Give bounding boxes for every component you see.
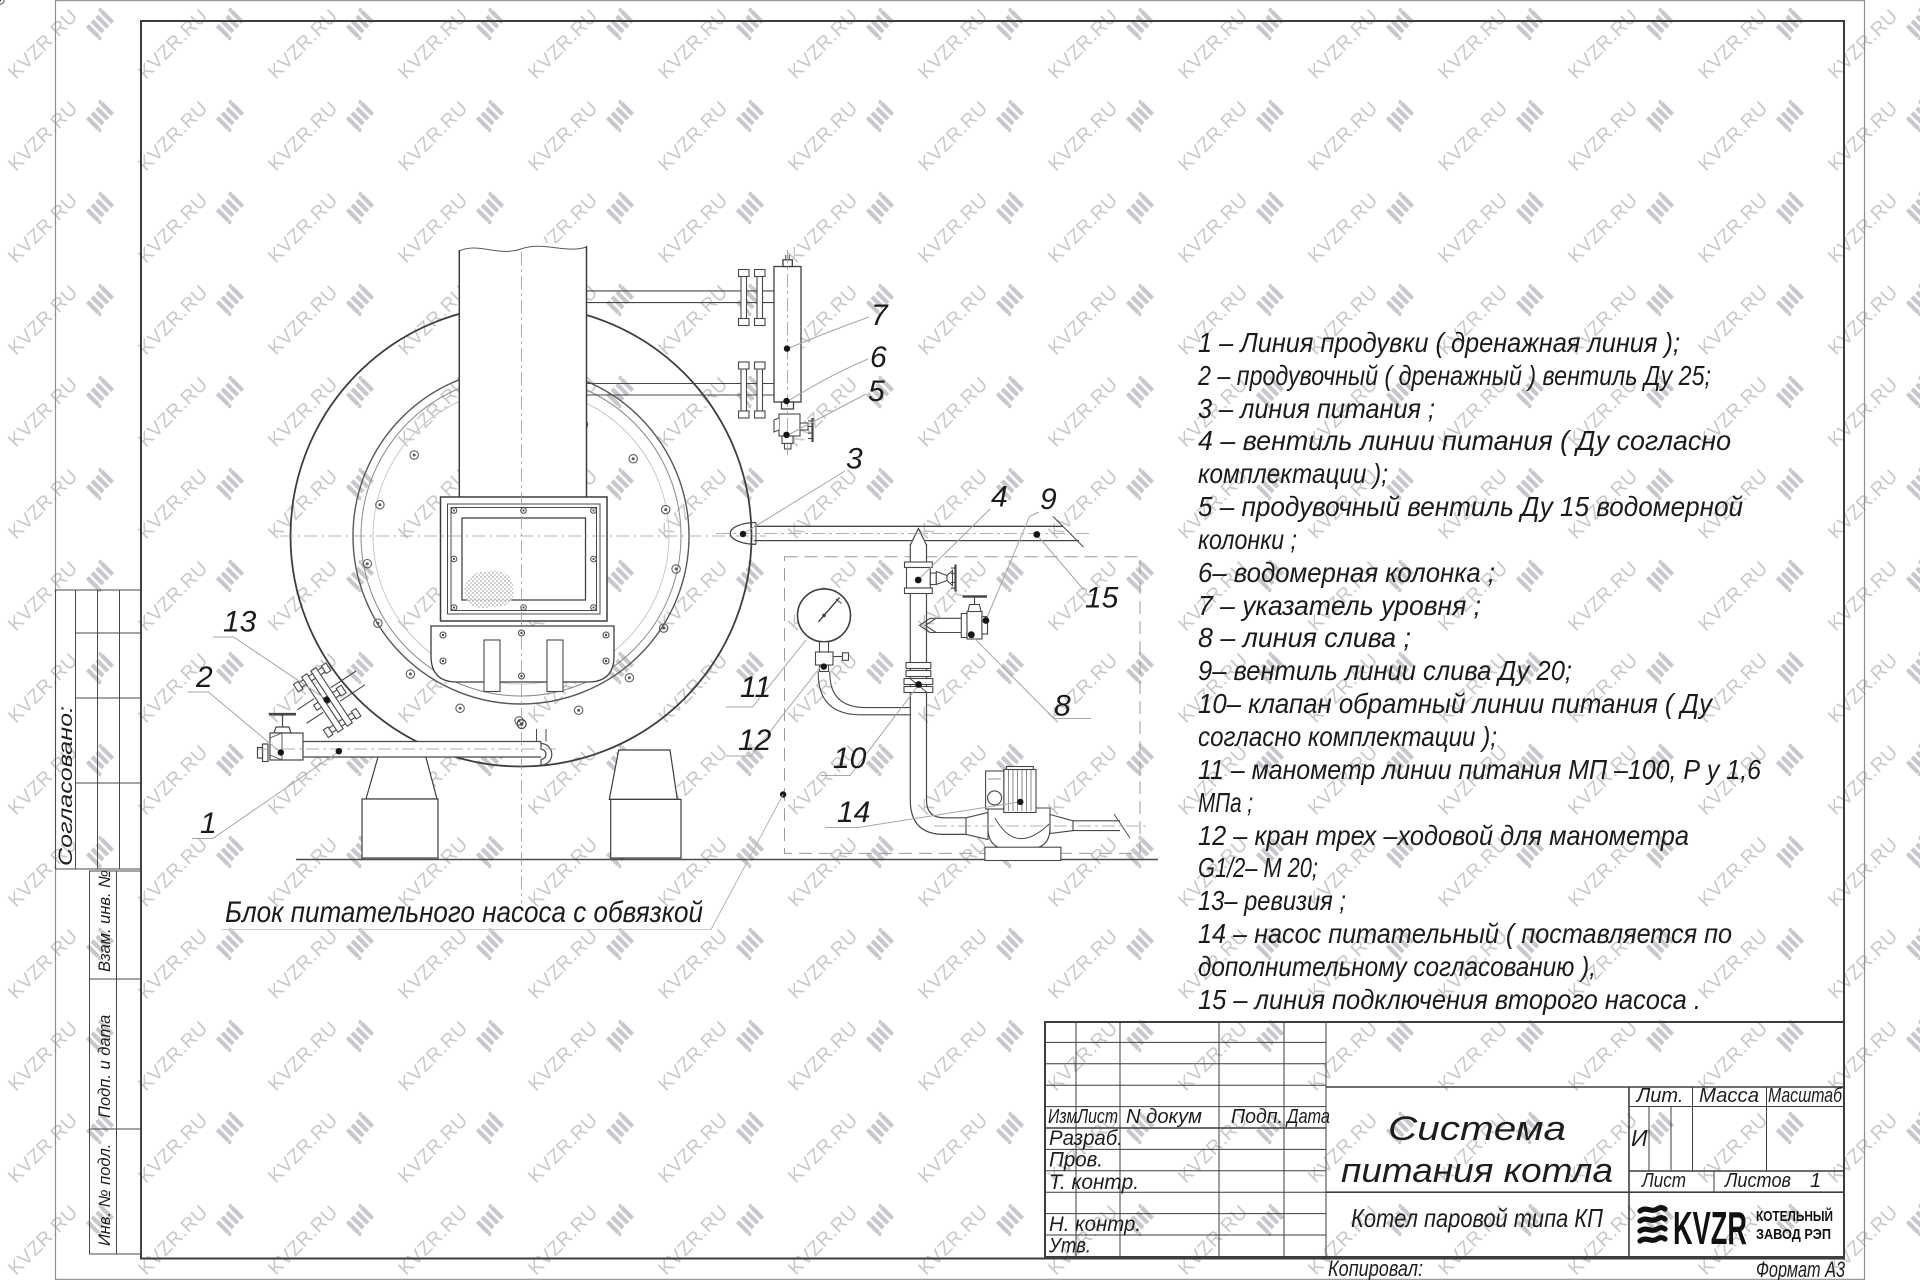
svg-text:Дата: Дата (1285, 1106, 1330, 1128)
svg-text:N докум: N докум (1126, 1106, 1202, 1128)
svg-text:15: 15 (1085, 582, 1119, 615)
svg-text:5 – продувочный вентиль Ду: 5 – продувочный вентиль Ду 15 водомерной (1198, 491, 1743, 522)
svg-text:1: 1 (200, 807, 217, 840)
svg-text:4: 4 (991, 481, 1008, 514)
svg-text:13: 13 (223, 606, 257, 639)
svg-text:Пров.: Пров. (1049, 1149, 1103, 1172)
svg-text:Лист: Лист (1640, 1170, 1686, 1192)
svg-text:14: 14 (837, 796, 870, 829)
svg-text:KVZR: KVZR (1673, 1202, 1747, 1254)
svg-text:12: 12 (738, 724, 772, 757)
svg-text:КОТЕЛЬНЫЙ: КОТЕЛЬНЫЙ (1756, 1207, 1833, 1225)
svg-text:14 – насос питательный ( по: 14 – насос питательный ( поставляется по (1198, 918, 1732, 949)
svg-text:1: 1 (1810, 1170, 1821, 1192)
svg-text:Н. контр.: Н. контр. (1049, 1213, 1141, 1236)
svg-text:Масштаб: Масштаб (1768, 1085, 1843, 1107)
svg-text:5: 5 (868, 375, 885, 408)
svg-text:10: 10 (833, 742, 867, 775)
svg-text:Подп.: Подп. (1231, 1106, 1283, 1128)
svg-text:Формат А3: Формат А3 (1756, 1257, 1846, 1280)
svg-text:8 – линия слива ;: 8 – линия слива ; (1198, 622, 1411, 653)
svg-text:комплектации );: комплектации ); (1198, 458, 1388, 489)
svg-text:Лит.: Лит. (1635, 1085, 1684, 1107)
svg-text:Утв.: Утв. (1048, 1235, 1091, 1258)
svg-text:8: 8 (1054, 690, 1071, 723)
svg-text:колонки ;: колонки ; (1198, 524, 1297, 555)
svg-text:7 – указатель уровня ;: 7 – указатель уровня ; (1198, 590, 1481, 621)
svg-text:Котел паровой типа КП: Котел паровой типа КП (1351, 1203, 1603, 1233)
svg-text:Система: Система (1388, 1110, 1566, 1148)
svg-text:11: 11 (740, 671, 771, 704)
svg-text:Т. контр.: Т. контр. (1049, 1171, 1139, 1194)
svg-text:дополнительному согласованию: дополнительному согласованию ), (1198, 951, 1596, 982)
svg-text:13– ревизия ;: 13– ревизия ; (1198, 885, 1346, 916)
svg-text:Разраб.: Разраб. (1049, 1127, 1123, 1150)
svg-text:9– вентиль линии слива Ду 2: 9– вентиль линии слива Ду 20; (1198, 655, 1572, 686)
svg-text:Инв. № подл.: Инв. № подл. (96, 1144, 114, 1246)
svg-text:2: 2 (195, 661, 213, 694)
svg-text:Блок питательного насоса с: Блок питательного насоса с обвязкой (225, 896, 703, 929)
svg-text:15 – линия подключения втор: 15 – линия подключения второго насоса . (1198, 984, 1701, 1015)
svg-text:11 – манометр линии питания: 11 – манометр линии питания МП –100, Р у… (1198, 754, 1761, 785)
svg-text:питания котла: питания котла (1341, 1152, 1613, 1190)
svg-text:МПа ;: МПа ; (1198, 787, 1253, 818)
svg-text:2 – продувочный ( дренажный: 2 – продувочный ( дренажный ) вентиль Ду… (1197, 360, 1711, 391)
svg-text:Масса: Масса (1699, 1085, 1759, 1107)
svg-text:Листов: Листов (1723, 1170, 1791, 1192)
svg-text:И: И (1631, 1125, 1648, 1151)
svg-text:G1/2– М 20;: G1/2– М 20; (1198, 852, 1318, 883)
svg-text:1 – Линия продувки ( дренажн: 1 – Линия продувки ( дренажная линия ); (1198, 327, 1680, 358)
svg-text:3: 3 (846, 443, 863, 476)
svg-text:7: 7 (871, 299, 889, 332)
svg-text:4 – вентиль линии питания (: 4 – вентиль линии питания ( Ду согласно (1198, 425, 1731, 456)
svg-text:Копировал:: Копировал: (1328, 1256, 1423, 1280)
svg-text:Согласовано:: Согласовано: (56, 706, 77, 866)
svg-text:6– водомерная колонка ;: 6– водомерная колонка ; (1198, 557, 1495, 588)
svg-text:3 – линия питания ;: 3 – линия питания ; (1198, 393, 1435, 424)
svg-text:согласно комплектации );: согласно комплектации ); (1198, 721, 1497, 752)
svg-text:ИзмЛист: ИзмЛист (1048, 1106, 1118, 1128)
svg-text:10– клапан обратный линии: 10– клапан обратный линии питания ( Ду (1198, 688, 1714, 719)
svg-text:12 – кран трех –ходовой для: 12 – кран трех –ходовой для манометра (1198, 820, 1689, 851)
svg-text:6: 6 (870, 341, 887, 374)
svg-text:ЗАВОД РЭП: ЗАВОД РЭП (1756, 1226, 1831, 1243)
svg-text:Подп. и дата: Подп. и дата (96, 1015, 114, 1118)
svg-text:Взам. инв. №: Взам. инв. № (96, 870, 114, 972)
svg-text:9: 9 (1040, 483, 1057, 516)
